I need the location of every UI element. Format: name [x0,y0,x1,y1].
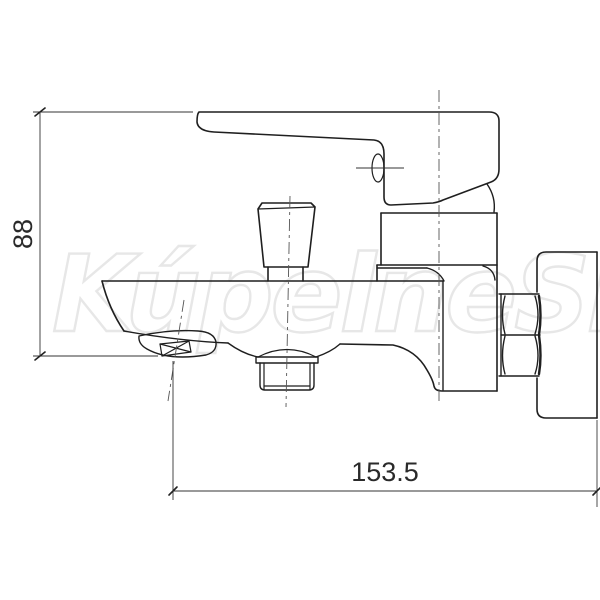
handle-pivot-marker [356,154,404,182]
handle-lever [197,112,499,205]
width-dimension: 153.5 [169,361,600,507]
technical-drawing-page: KúpelneSK [0,0,600,600]
width-dimension-label: 153.5 [351,457,419,487]
technical-drawing-canvas: KúpelneSK [0,0,600,600]
height-dimension-label: 88 [8,219,38,249]
